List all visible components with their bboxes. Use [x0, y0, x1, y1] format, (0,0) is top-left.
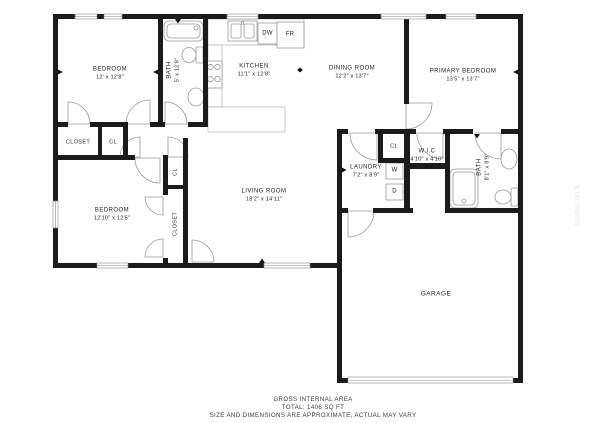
room-label-cl-laundry: CL: [390, 143, 398, 151]
watermark: Stellar MLS: [575, 184, 582, 226]
garage-door: [348, 377, 513, 383]
room-label-living-room: LIVING ROOM 18'2" x 14'11": [242, 189, 287, 204]
room-label-cl-hall: CL: [172, 168, 180, 176]
sink-icon: [501, 149, 517, 169]
bathtub-icon: [164, 21, 203, 41]
window: [446, 14, 476, 19]
room-label-laundry: LAUNDRY 7'2" x 8'9": [350, 165, 382, 180]
room-label-cl: CL: [109, 139, 117, 147]
room-label-kitchen: KITCHEN 11'1" x 12'8": [238, 64, 271, 79]
room-label-closet-hall: CLOSET: [172, 212, 180, 236]
stove-icon: [206, 61, 222, 88]
room-label-bath-1: BATH 5' x 12'8": [167, 58, 182, 82]
room-label-bedroom-1: BEDROOM 12' x 12'8": [93, 67, 127, 82]
sink-icon: [188, 88, 204, 106]
window: [264, 263, 310, 268]
window: [227, 14, 258, 19]
room-label-garage: GARAGE: [421, 290, 452, 298]
washer-label: W: [392, 167, 398, 175]
kitchen-sink-icon: [228, 21, 257, 41]
room-label-wic: W.I.C 4'10" x 4'10": [410, 149, 443, 164]
window: [381, 14, 426, 19]
footer-total-sqft: TOTAL: 1406 SQ FT: [282, 404, 344, 411]
window: [75, 14, 97, 19]
dryer-label: D: [392, 188, 397, 196]
window: [97, 263, 128, 268]
room-label-dining-room: DINING ROOM 12'2" x 13'7": [329, 66, 375, 81]
window: [104, 14, 122, 19]
footer-gross-area: GROSS INTERNAL AREA: [273, 396, 352, 403]
footer-disclaimer: SIZE AND DIMENSIONS ARE APPROXIMATE, ACT…: [210, 412, 417, 419]
room-label-closet: CLOSET: [66, 139, 90, 147]
toilet-icon: [495, 188, 518, 206]
toilet-icon: [182, 47, 203, 63]
floorplan: BEDROOM 12' x 12'8" BATH 5' x 12'8" KITC…: [0, 0, 600, 423]
room-label-primary-bedroom: PRIMARY BEDROOM 13'5" x 13'7": [430, 69, 497, 84]
bathtub-icon: [450, 169, 478, 208]
floorplan-drawing: [0, 0, 600, 423]
room-label-bath-2: BATH 8'1" x 8'9": [477, 154, 492, 181]
window: [53, 201, 58, 228]
fridge-label: FR: [286, 31, 294, 39]
dishwasher-label: DW: [262, 30, 272, 38]
room-label-bedroom-2: BEDROOM 12'10" x 12'5": [94, 208, 131, 223]
